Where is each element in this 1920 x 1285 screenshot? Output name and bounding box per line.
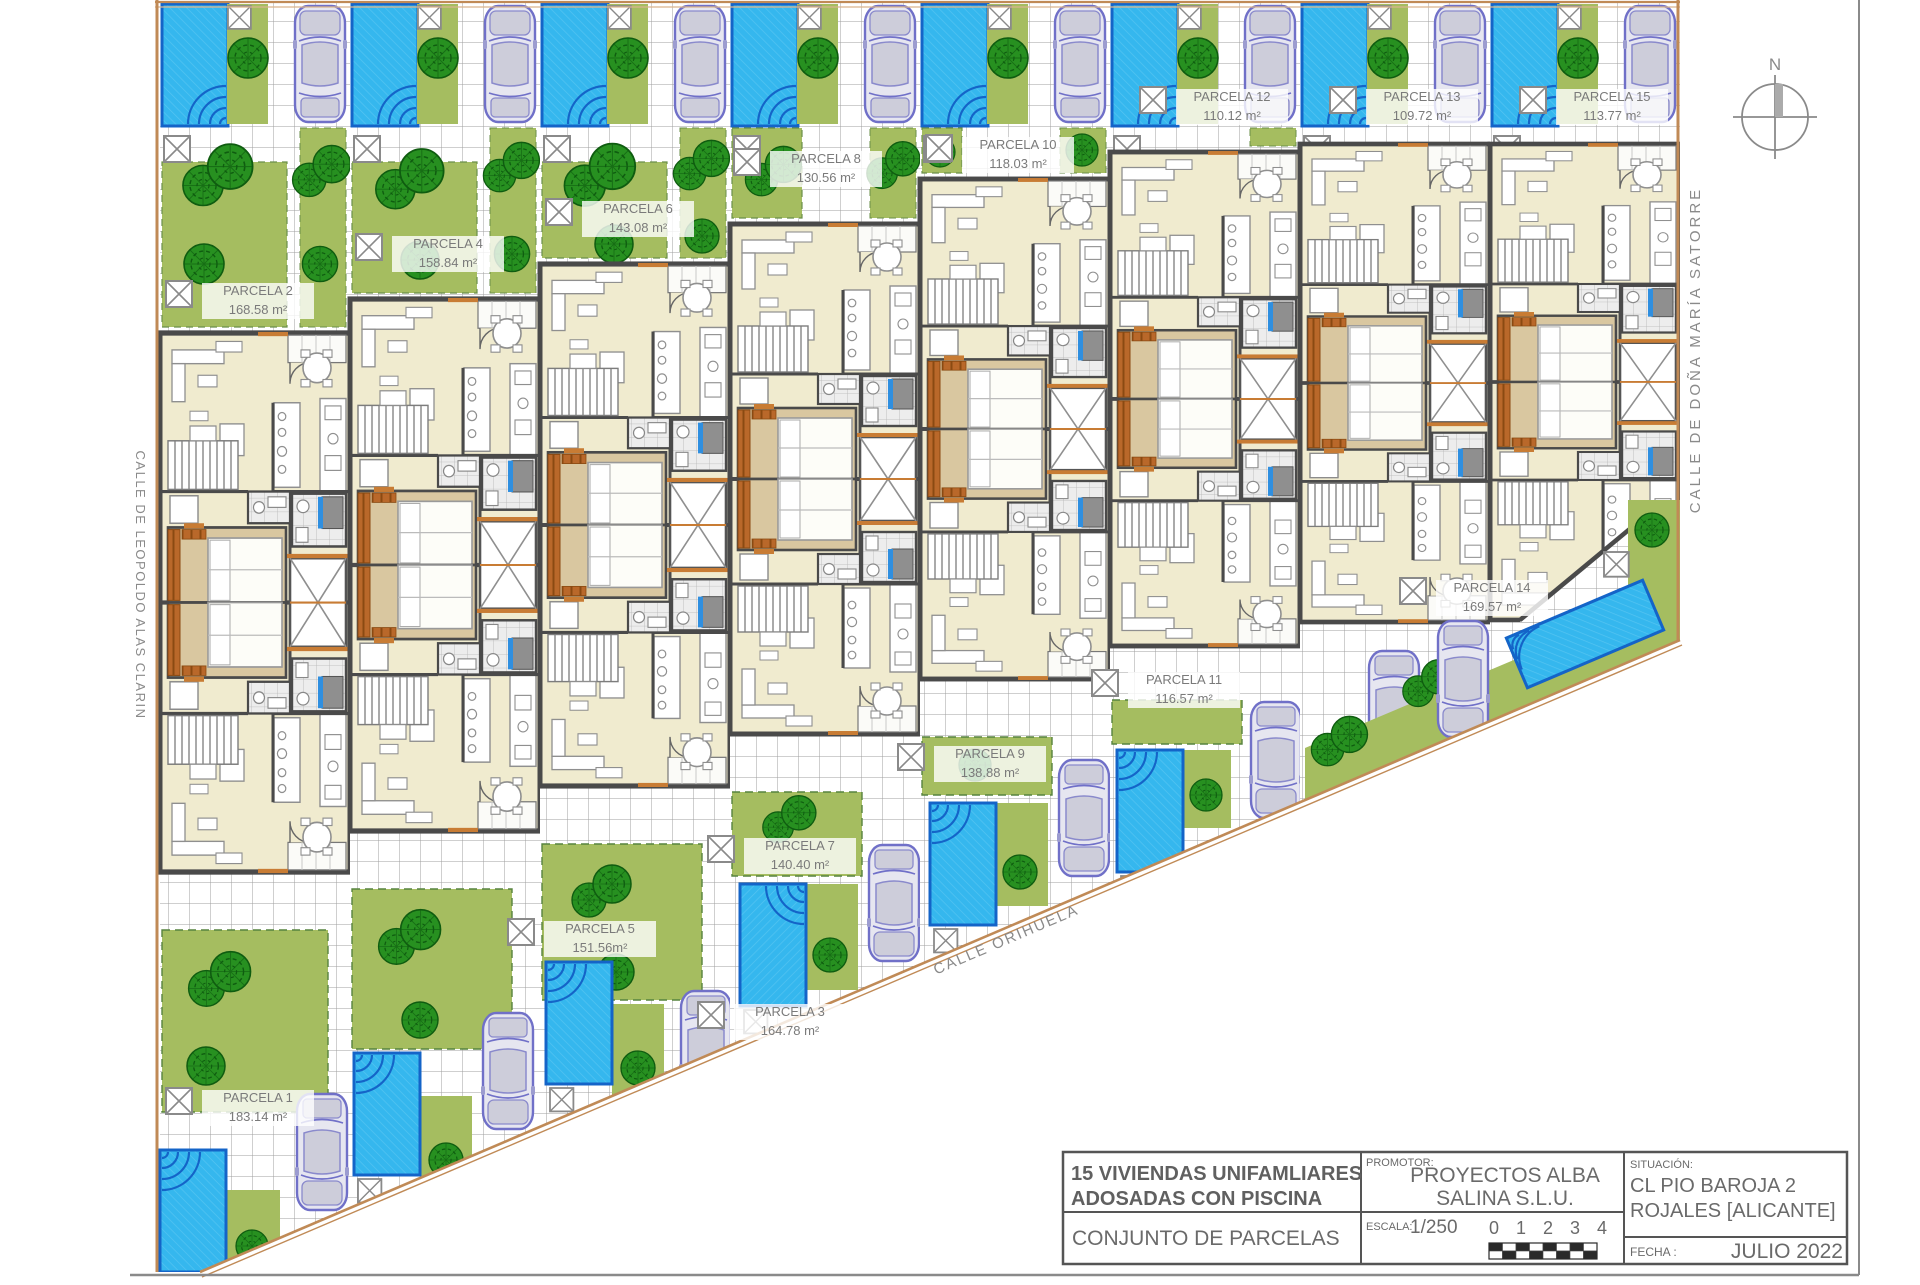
svg-text:PARCELA 4: PARCELA 4: [413, 236, 483, 251]
svg-text:1/250: 1/250: [1410, 1217, 1458, 1238]
svg-text:PARCELA 15: PARCELA 15: [1573, 89, 1650, 104]
svg-text:ADOSADAS CON PISCINA: ADOSADAS CON PISCINA: [1071, 1188, 1322, 1210]
svg-text:PARCELA 8: PARCELA 8: [791, 151, 861, 166]
svg-text:3: 3: [1570, 1218, 1580, 1238]
svg-text:PARCELA 12: PARCELA 12: [1193, 89, 1270, 104]
svg-text:CALLE DE DOÑA MARÍA SATORRE: CALLE DE DOÑA MARÍA SATORRE: [1687, 187, 1704, 513]
svg-text:143.08 m²: 143.08 m²: [609, 220, 668, 235]
svg-text:PARCELA 14: PARCELA 14: [1453, 580, 1530, 595]
svg-text:PARCELA 2: PARCELA 2: [223, 283, 293, 298]
svg-text:CL PIO BAROJA 2: CL PIO BAROJA 2: [1630, 1175, 1796, 1197]
svg-text:158.84 m²: 158.84 m²: [419, 255, 478, 270]
svg-text:118.03 m²: 118.03 m²: [989, 156, 1047, 171]
svg-text:PARCELA 11: PARCELA 11: [1146, 672, 1222, 687]
svg-text:N: N: [1769, 55, 1781, 74]
svg-text:151.56m²: 151.56m²: [573, 940, 629, 955]
svg-text:109.72 m²: 109.72 m²: [1393, 108, 1452, 123]
svg-text:169.57 m²: 169.57 m²: [1463, 599, 1522, 614]
svg-text:4: 4: [1597, 1218, 1607, 1238]
svg-text:PARCELA 7: PARCELA 7: [765, 838, 835, 853]
svg-text:168.58 m²: 168.58 m²: [229, 302, 288, 317]
svg-text:140.40 m²: 140.40 m²: [771, 857, 830, 872]
svg-text:SITUACIÓN:: SITUACIÓN:: [1630, 1158, 1693, 1171]
svg-text:116.57 m²: 116.57 m²: [1155, 691, 1213, 706]
svg-text:PARCELA 13: PARCELA 13: [1383, 89, 1460, 104]
svg-text:164.78 m²: 164.78 m²: [761, 1023, 820, 1038]
svg-text:ESCALA:: ESCALA:: [1366, 1221, 1412, 1233]
svg-text:PARCELA 1: PARCELA 1: [223, 1090, 293, 1105]
svg-text:138.88 m²: 138.88 m²: [961, 765, 1020, 780]
svg-text:PARCELA 3: PARCELA 3: [755, 1004, 825, 1019]
svg-text:PARCELA 6: PARCELA 6: [603, 201, 673, 216]
svg-text:SALINA S.L.U.: SALINA S.L.U.: [1436, 1187, 1574, 1210]
svg-text:110.12 m²: 110.12 m²: [1203, 108, 1261, 123]
svg-text:JULIO 2022: JULIO 2022: [1731, 1240, 1843, 1263]
svg-text:PROYECTOS ALBA: PROYECTOS ALBA: [1410, 1164, 1600, 1187]
svg-text:0: 0: [1489, 1218, 1499, 1238]
svg-text:PARCELA 5: PARCELA 5: [565, 921, 635, 936]
svg-text:183.14 m²: 183.14 m²: [229, 1109, 288, 1124]
svg-text:1: 1: [1516, 1218, 1526, 1238]
svg-text:113.77 m²: 113.77 m²: [1583, 108, 1641, 123]
svg-text:CALLE DE LEOPOLDO ALAS CLARIN: CALLE DE LEOPOLDO ALAS CLARIN: [133, 451, 148, 720]
svg-text:PARCELA 9: PARCELA 9: [955, 746, 1025, 761]
svg-text:FECHA :: FECHA :: [1630, 1245, 1677, 1259]
svg-text:ROJALES [ALICANTE]: ROJALES [ALICANTE]: [1630, 1200, 1836, 1222]
svg-text:PARCELA 10: PARCELA 10: [979, 137, 1056, 152]
svg-text:15 VIVIENDAS UNIFAMLIARES: 15 VIVIENDAS UNIFAMLIARES: [1071, 1163, 1362, 1185]
svg-text:130.56 m²: 130.56 m²: [797, 170, 856, 185]
svg-text:CONJUNTO DE PARCELAS: CONJUNTO DE PARCELAS: [1072, 1227, 1340, 1250]
svg-text:2: 2: [1543, 1218, 1553, 1238]
